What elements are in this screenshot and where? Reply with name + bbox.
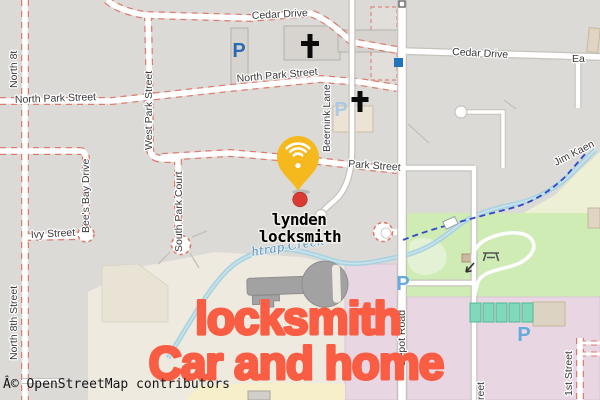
culdesac-island — [381, 228, 391, 238]
place-name-line2: locksmith — [259, 227, 341, 246]
building — [587, 28, 600, 53]
wifi-dot — [295, 163, 300, 168]
map-canvas[interactable]: P P P P Cedar Drive Cedar Drive Ea North… — [0, 0, 600, 400]
building — [248, 391, 270, 400]
map-graphics: P P P P Cedar Drive Cedar Drive Ea North… — [0, 0, 600, 400]
building — [588, 208, 600, 228]
label-first-street: 1st Street — [563, 351, 575, 396]
label-west-park: West Park Street — [143, 71, 155, 150]
location-dot-marker[interactable] — [293, 192, 307, 206]
court — [483, 303, 494, 322]
label-south-park-court: South Park Court — [173, 171, 185, 252]
court — [509, 303, 520, 322]
dashed-parcel — [371, 51, 397, 80]
courts-layer — [470, 303, 533, 322]
osm-attribution[interactable]: Â© OpenStreetMap contributors — [3, 377, 230, 392]
label-east-partial: Ea — [572, 53, 585, 65]
building — [533, 302, 565, 326]
culdesac-service — [455, 106, 467, 118]
label-bees-bay: Bee's Bay Drive — [80, 158, 92, 233]
court — [470, 303, 481, 322]
parking-icon: P — [517, 324, 530, 346]
label-north-8th-top: North 8t — [8, 51, 20, 88]
parking-icon: P — [232, 40, 245, 62]
label-beernink: Beernink Lane — [321, 84, 333, 152]
court — [496, 303, 507, 322]
label-north-8th-bottom: North 8th Street — [8, 286, 20, 360]
parking-icon: P — [334, 99, 347, 121]
blue-square-icon — [394, 58, 403, 67]
label-street-partial: reet — [475, 382, 487, 400]
court — [522, 303, 533, 322]
label-ivy: Ivy Street — [31, 227, 76, 241]
